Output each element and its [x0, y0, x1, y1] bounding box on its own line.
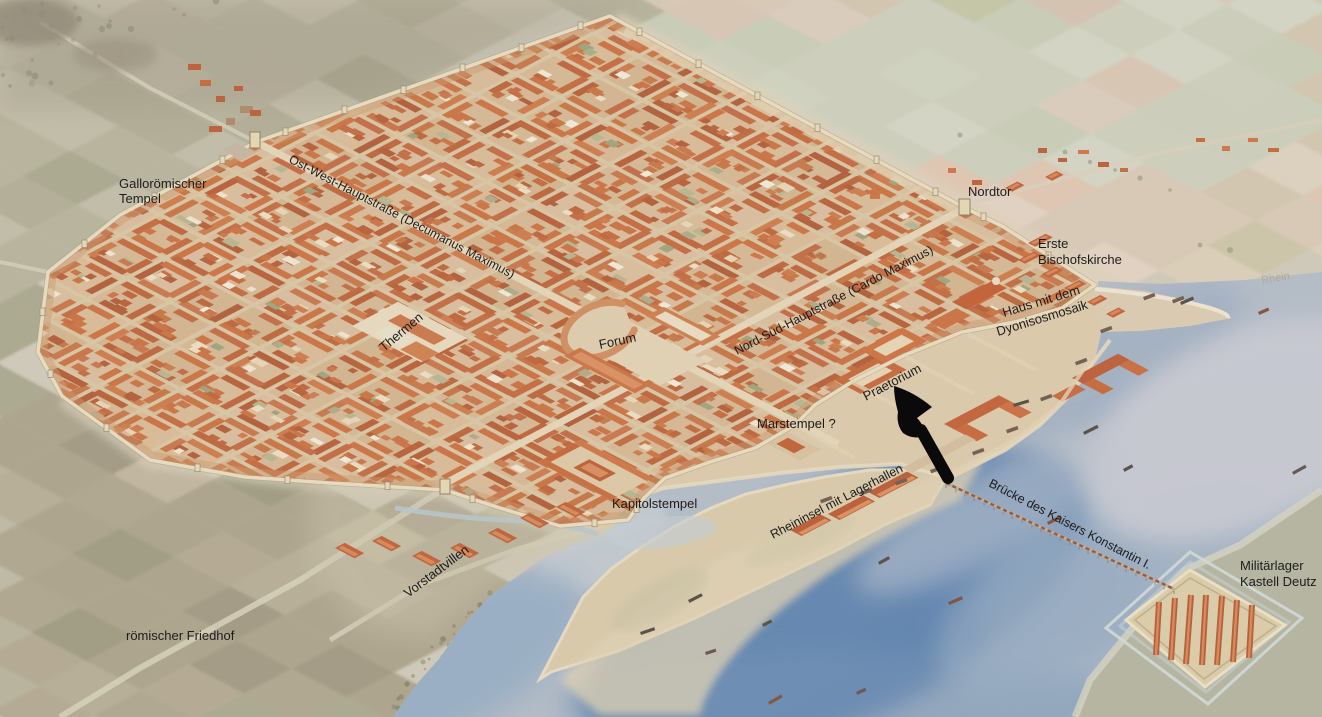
- svg-text:Tempel: Tempel: [119, 191, 161, 206]
- svg-text:Erste: Erste: [1038, 236, 1068, 251]
- svg-text:Bischofskirche: Bischofskirche: [1038, 252, 1122, 267]
- svg-text:Gallorömischer: Gallorömischer: [119, 176, 207, 191]
- svg-text:Kapitolstempel: Kapitolstempel: [612, 496, 697, 511]
- svg-text:Kastell Deutz: Kastell Deutz: [1240, 574, 1317, 589]
- svg-text:römischer Friedhof: römischer Friedhof: [126, 628, 235, 643]
- svg-text:Marstempel ?: Marstempel ?: [757, 416, 836, 431]
- svg-text:Militärlager: Militärlager: [1240, 558, 1304, 573]
- svg-text:Nordtor: Nordtor: [968, 184, 1012, 199]
